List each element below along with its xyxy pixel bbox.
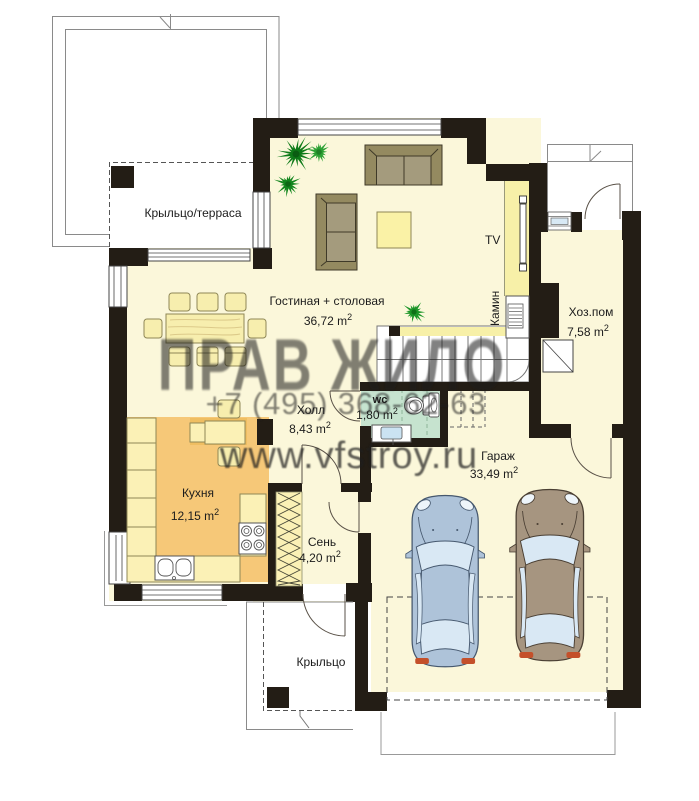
svg-text:Гараж: Гараж (481, 449, 515, 463)
svg-text:www.vfstroy.ru: www.vfstroy.ru (219, 435, 478, 477)
svg-text:12,15 m2: 12,15 m2 (171, 507, 219, 523)
svg-text:+7 (495) 368-62-63: +7 (495) 368-62-63 (206, 386, 487, 421)
svg-text:33,49 m2: 33,49 m2 (470, 465, 518, 481)
svg-text:Хоз.пом: Хоз.пом (569, 305, 614, 319)
svg-text:Крыльцо/терраса: Крыльцо/терраса (144, 206, 241, 220)
svg-text:Кухня: Кухня (182, 486, 214, 500)
svg-text:Гостиная + столовая: Гостиная + столовая (269, 294, 384, 308)
svg-text:Крыльцо: Крыльцо (297, 655, 346, 669)
svg-text:7,58 m2: 7,58 m2 (567, 323, 609, 339)
svg-text:8,43 m2: 8,43 m2 (289, 420, 331, 436)
svg-text:36,72 m2: 36,72 m2 (304, 312, 352, 328)
svg-text:wc: wc (372, 394, 388, 406)
svg-text:Холл: Холл (297, 403, 325, 417)
svg-text:TV: TV (485, 233, 500, 247)
svg-text:4,20 m2: 4,20 m2 (299, 549, 341, 565)
svg-text:1,80 m2: 1,80 m2 (356, 406, 398, 422)
svg-text:Сень: Сень (308, 535, 336, 549)
svg-text:Камин: Камин (488, 291, 502, 326)
